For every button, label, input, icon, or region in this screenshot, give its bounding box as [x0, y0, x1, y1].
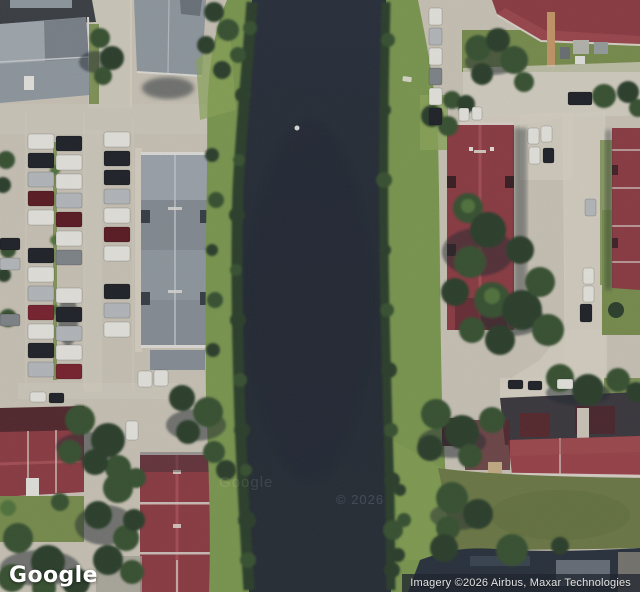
imagery-attribution-text: Imagery ©2026 Airbus, Maxar Technologies: [410, 577, 631, 589]
satellite-imagery: [0, 0, 640, 592]
imagery-attribution: Imagery ©2026 Airbus, Maxar Technologies: [402, 574, 640, 592]
satellite-map-viewport[interactable]: Google © 2026 Google Imagery ©2026 Airbu…: [0, 0, 640, 592]
grain-overlay-light: [0, 0, 640, 592]
google-logo[interactable]: Google: [9, 565, 98, 587]
